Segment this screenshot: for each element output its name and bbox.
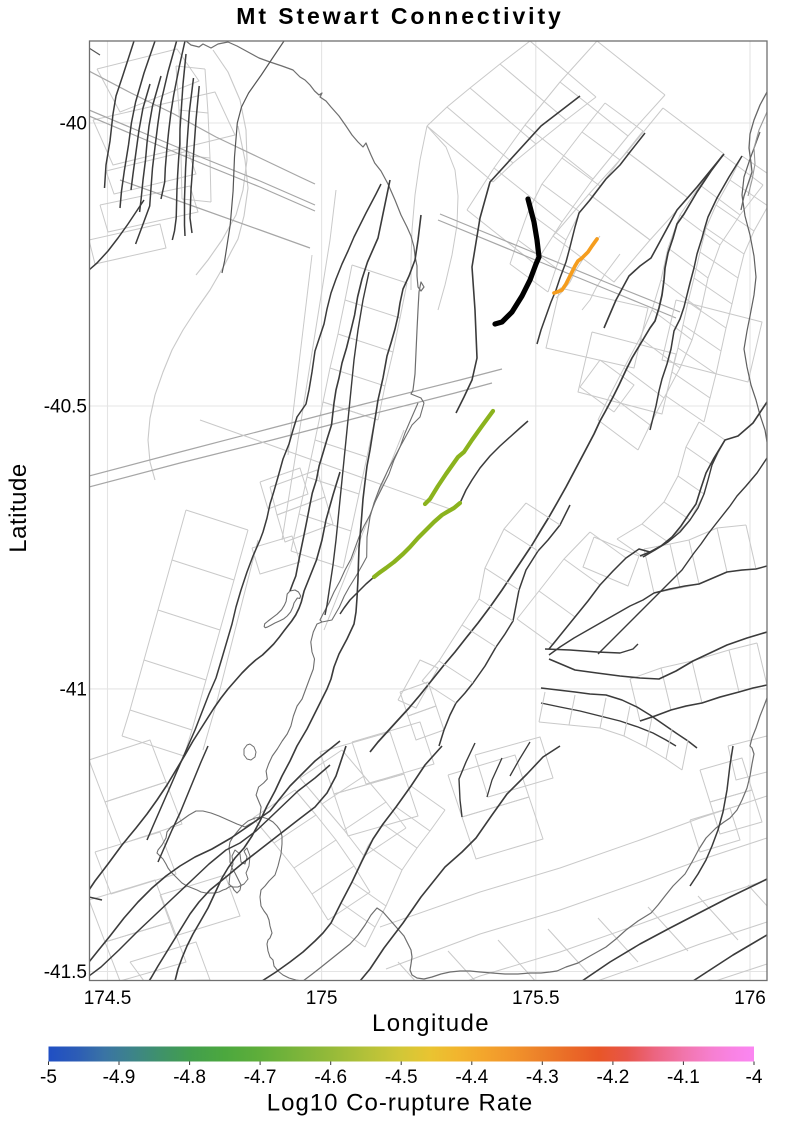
svg-text:-40.5: -40.5 bbox=[44, 397, 87, 418]
svg-text:-4: -4 bbox=[746, 1067, 763, 1088]
svg-text:Log10 Co-rupture Rate: Log10 Co-rupture Rate bbox=[267, 1090, 533, 1117]
svg-text:176: 176 bbox=[734, 988, 766, 1009]
svg-text:Latitude: Latitude bbox=[5, 463, 32, 552]
svg-text:-4.9: -4.9 bbox=[103, 1067, 136, 1088]
svg-text:-4.2: -4.2 bbox=[597, 1067, 630, 1088]
svg-text:-4.6: -4.6 bbox=[314, 1067, 347, 1088]
svg-text:175: 175 bbox=[306, 988, 338, 1009]
svg-text:-4.4: -4.4 bbox=[455, 1067, 488, 1088]
svg-text:-5: -5 bbox=[40, 1067, 57, 1088]
svg-text:175.5: 175.5 bbox=[512, 988, 560, 1009]
svg-text:-4.5: -4.5 bbox=[385, 1067, 418, 1088]
svg-text:-40: -40 bbox=[60, 114, 87, 135]
svg-text:-4.1: -4.1 bbox=[667, 1067, 700, 1088]
svg-text:-4.3: -4.3 bbox=[526, 1067, 559, 1088]
svg-text:-4.8: -4.8 bbox=[173, 1067, 206, 1088]
svg-text:Mt Stewart Connectivity: Mt Stewart Connectivity bbox=[236, 3, 563, 29]
svg-text:-4.7: -4.7 bbox=[244, 1067, 277, 1088]
svg-text:-41.5: -41.5 bbox=[44, 962, 87, 983]
svg-text:174.5: 174.5 bbox=[84, 988, 132, 1009]
svg-text:-41: -41 bbox=[60, 680, 87, 701]
svg-text:Longitude: Longitude bbox=[372, 1010, 490, 1037]
